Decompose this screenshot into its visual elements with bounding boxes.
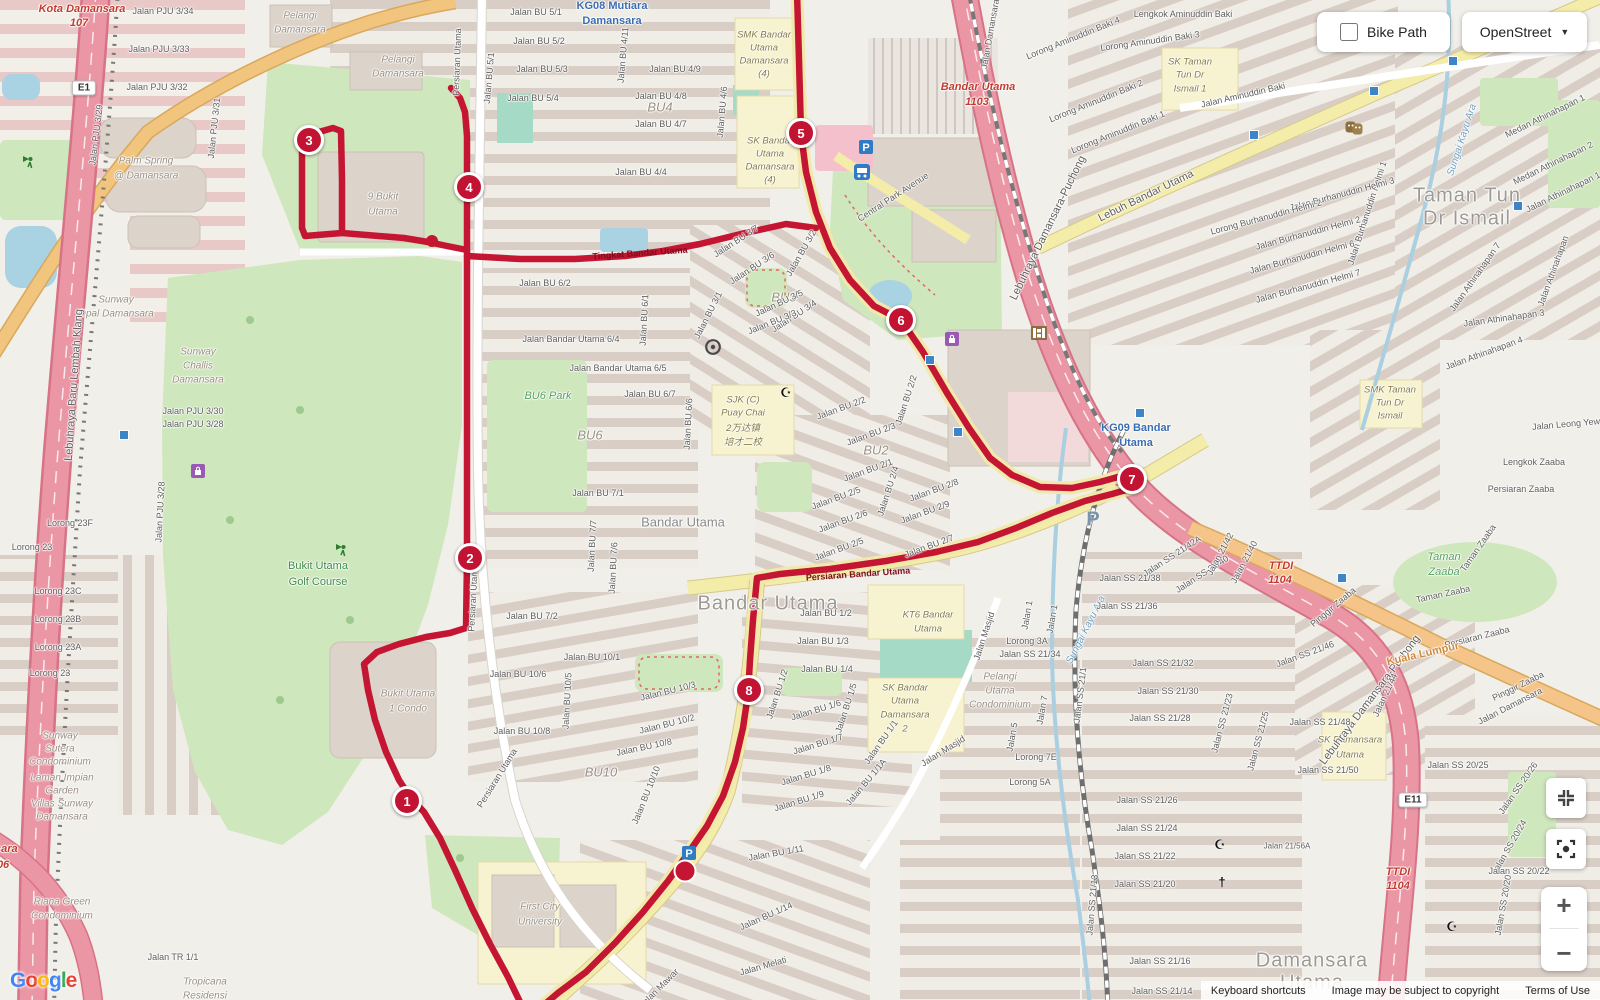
exit-fullscreen-button[interactable] — [1546, 778, 1586, 818]
google-logo-letter: o — [25, 969, 37, 992]
terms-of-use-link[interactable]: Terms of Use — [1525, 985, 1590, 997]
zoom-control[interactable]: + − — [1541, 887, 1587, 971]
attribution-bar: Keyboard shortcuts Image may be subject … — [1201, 981, 1600, 1000]
base-map — [0, 0, 1600, 1000]
copyright-text: Image may be subject to copyright — [1332, 985, 1500, 997]
chevron-down-icon: ▼ — [1560, 27, 1569, 37]
map-canvas[interactable]: Kota Damansara107Bandar Utama1103TTDI110… — [0, 0, 1600, 1000]
locate-icon — [1556, 839, 1576, 859]
basemap-dropdown[interactable]: OpenStreet ▼ — [1462, 12, 1587, 52]
google-logo-letter: g — [49, 969, 61, 992]
bike-path-checkbox[interactable] — [1340, 23, 1358, 41]
zoom-in-button[interactable]: + — [1541, 892, 1587, 918]
google-logo-letter: G — [10, 969, 25, 992]
basemap-value: OpenStreet — [1480, 24, 1552, 40]
google-logo[interactable]: Google — [10, 969, 76, 993]
bike-path-label: Bike Path — [1367, 24, 1427, 40]
bike-path-toggle[interactable]: Bike Path — [1317, 12, 1450, 52]
keyboard-shortcuts-link[interactable]: Keyboard shortcuts — [1211, 985, 1306, 997]
compress-icon — [1556, 788, 1576, 808]
divider — [1549, 928, 1579, 929]
google-logo-letter: e — [66, 969, 77, 992]
recenter-button[interactable] — [1546, 829, 1586, 869]
zoom-out-button[interactable]: − — [1541, 940, 1587, 966]
google-logo-letter: o — [37, 969, 49, 992]
